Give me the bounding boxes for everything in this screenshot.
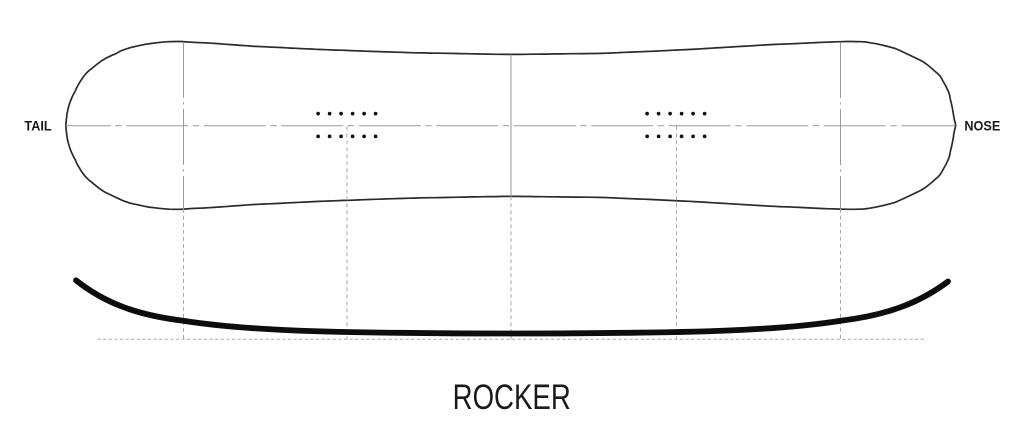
svg-text:NOSE: NOSE <box>964 118 1000 133</box>
svg-text:ROCKER: ROCKER <box>453 377 571 417</box>
svg-text:TAIL: TAIL <box>24 118 51 133</box>
